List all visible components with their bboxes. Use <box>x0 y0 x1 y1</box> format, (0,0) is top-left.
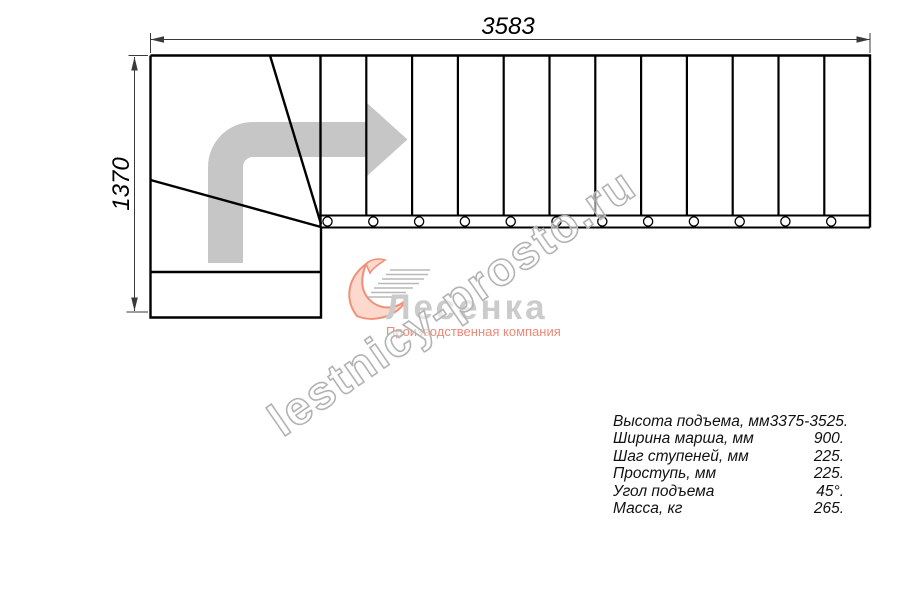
spec-label: Шаг ступеней, мм <box>613 448 749 465</box>
spec-row: Масса, кг 265. <box>613 500 844 517</box>
spec-row: Высота подъема, мм 3375-3525. <box>613 413 844 430</box>
logo-name: Лесенка <box>386 290 548 325</box>
spec-row: Ширина марша, мм 900. <box>613 430 844 447</box>
spec-label: Масса, кг <box>613 500 682 517</box>
spec-label: Ширина марша, мм <box>613 430 754 447</box>
spec-label: Угол подъема <box>613 483 714 500</box>
direction-arrow <box>226 103 408 263</box>
spec-row: Проступь, мм 225. <box>613 465 844 482</box>
spec-label: Высота подъема, мм <box>613 413 770 430</box>
spec-value: 45°. <box>816 483 844 500</box>
height-dimension-label: 1370 <box>108 157 135 211</box>
tread-edges <box>366 56 824 216</box>
company-logo: Лесенка Производственная компания <box>340 254 560 346</box>
spec-value: 265. <box>814 500 844 517</box>
dim-arrow-down <box>131 298 138 312</box>
drawing-page: 3583 1370 Лесенка Производ <box>0 0 900 600</box>
spec-label: Проступь, мм <box>613 465 716 482</box>
dim-arrow-right <box>857 36 871 43</box>
baluster-circles <box>323 217 836 226</box>
direction-arrow-head <box>367 103 408 176</box>
spec-row: Угол подъема 45°. <box>613 483 844 500</box>
spec-row: Шаг ступеней, мм 225. <box>613 448 844 465</box>
width-dimension-label: 3583 <box>481 13 535 40</box>
specs-table: Высота подъема, мм 3375-3525. Ширина мар… <box>613 413 844 517</box>
spec-value: 225. <box>814 448 844 465</box>
spec-value: 225. <box>814 465 844 482</box>
spec-value: 900. <box>814 430 844 447</box>
dim-arrow-left <box>151 36 165 43</box>
dim-arrow-up <box>131 57 138 71</box>
logo-subtitle: Производственная компания <box>386 325 561 338</box>
spec-value: 3375-3525. <box>770 413 848 430</box>
